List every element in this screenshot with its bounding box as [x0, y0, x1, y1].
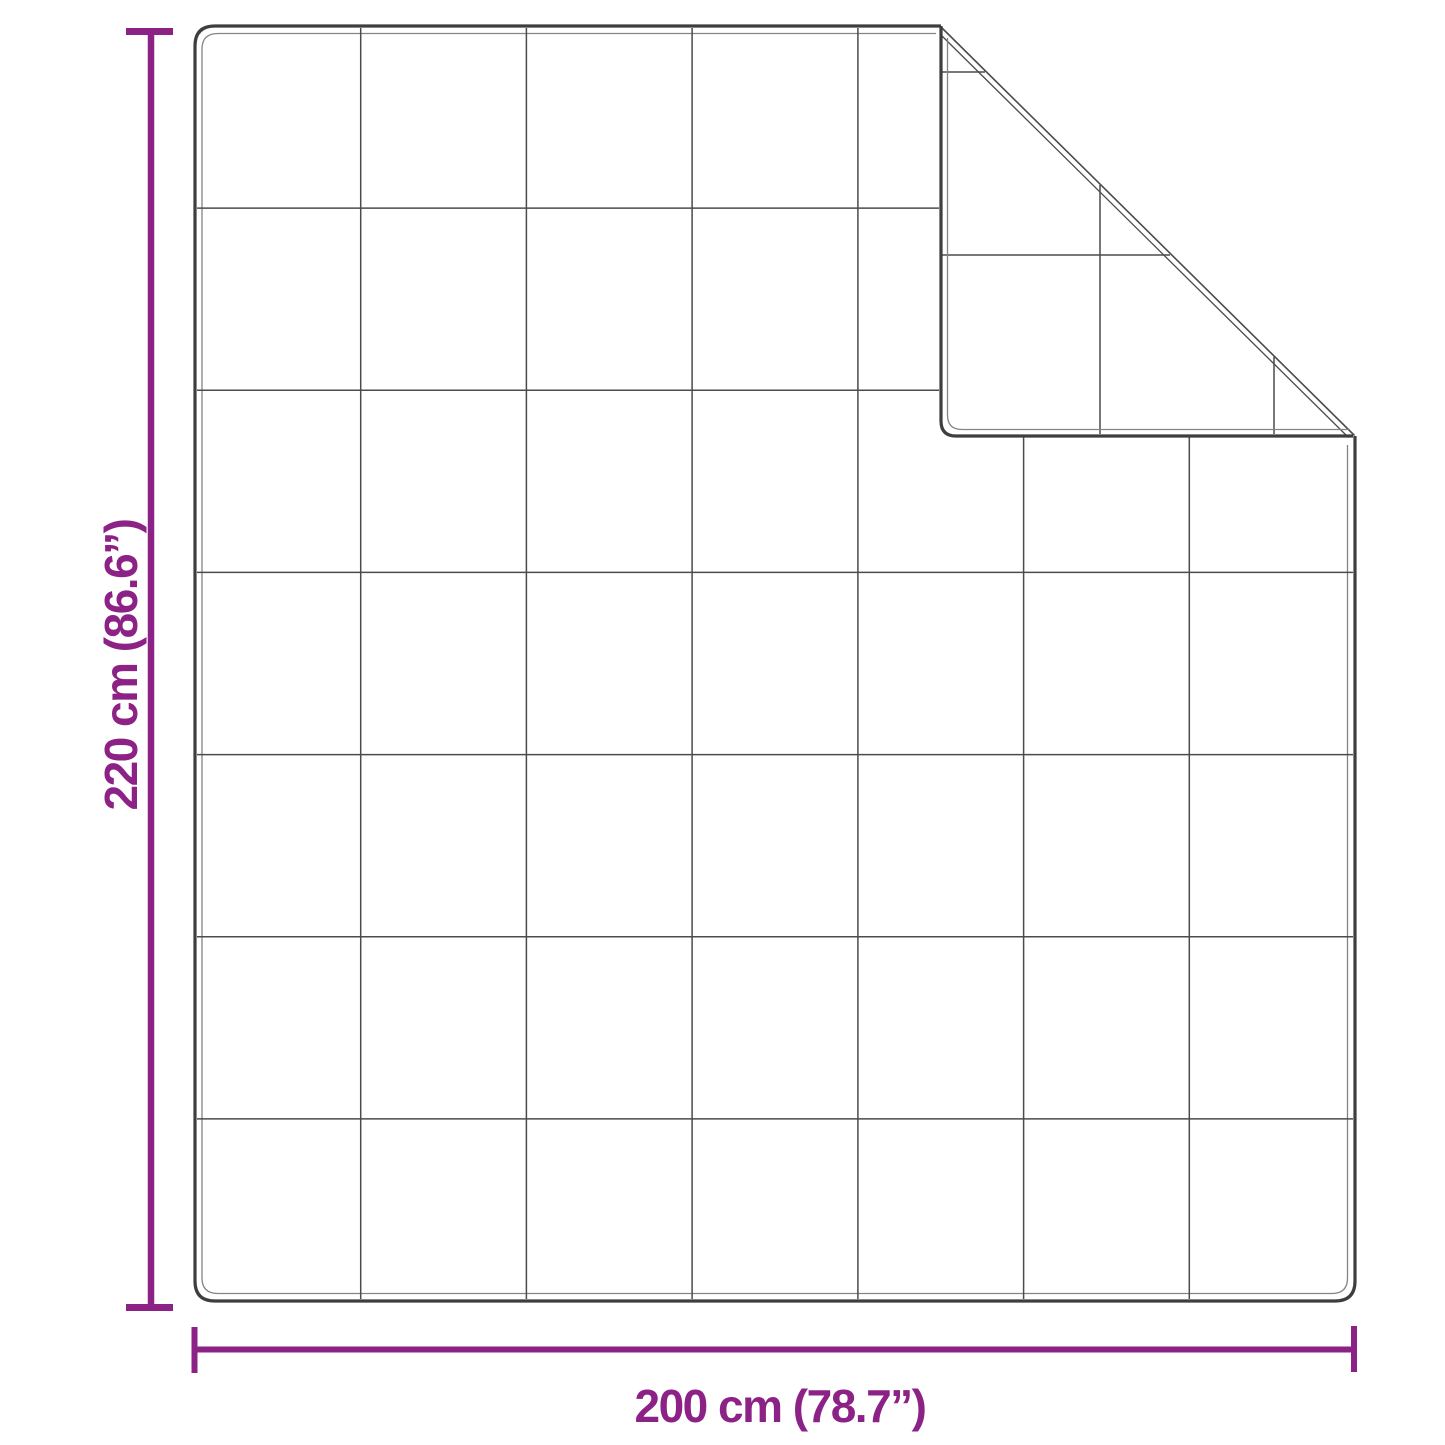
blanket-outer-edge [195, 26, 1355, 1301]
dimension-diagram: 220 cm (86.6”) 200 cm (78.7”) [0, 0, 1445, 1445]
width-dimension [195, 1326, 1355, 1373]
width-dimension-label: 200 cm (78.7”) [635, 1380, 926, 1432]
blanket-diagram-svg: 220 cm (86.6”) 200 cm (78.7”) [0, 0, 1445, 1445]
height-dimension-label: 220 cm (86.6”) [95, 519, 147, 810]
blanket-outline [195, 26, 1355, 1301]
